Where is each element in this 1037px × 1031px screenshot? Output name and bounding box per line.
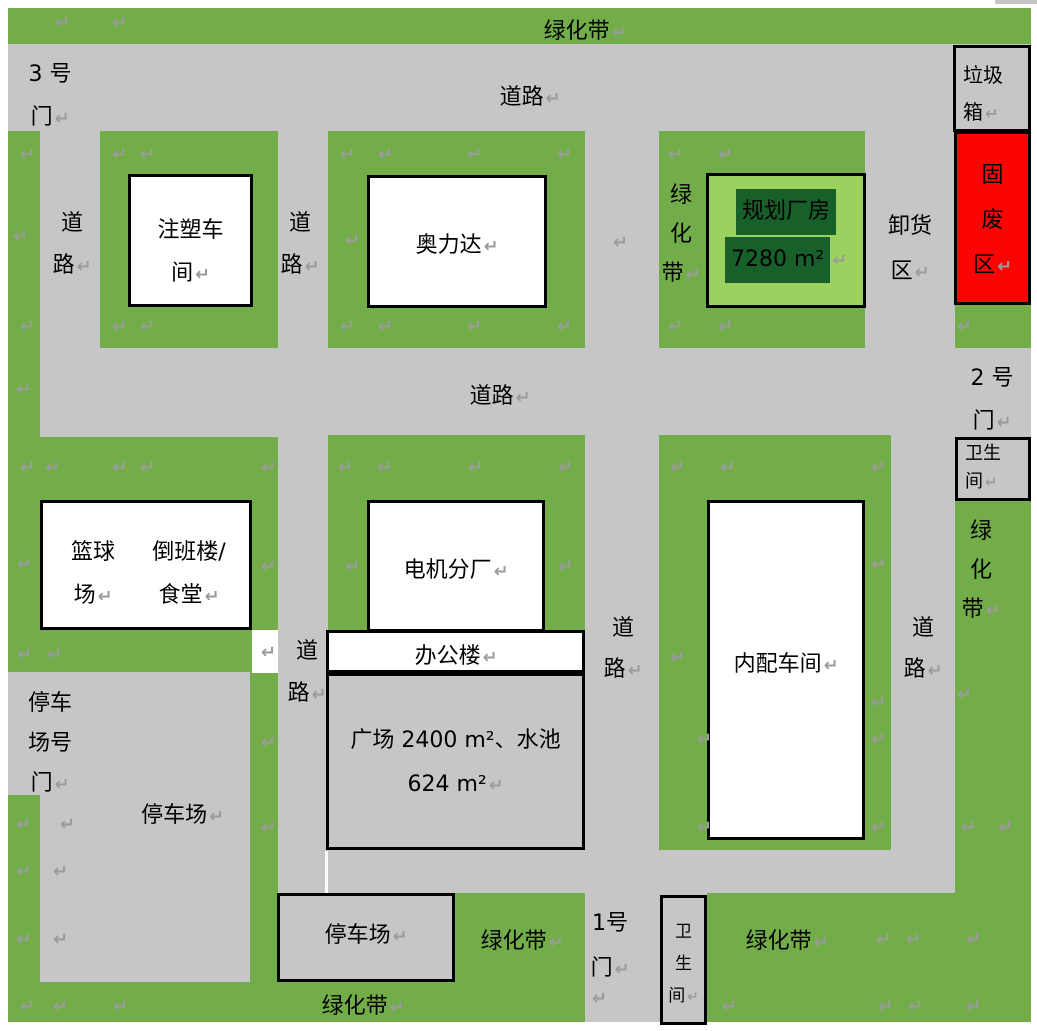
restroom-bottom-label: 卫 生 间↵ [660,916,707,1013]
paragraph-mark-icon: ↵ [467,146,482,164]
parking-main-label: 停车场↵ [120,797,245,829]
paragraph-mark-icon: ↵ [876,931,891,949]
paragraph-mark-icon: ↵ [928,661,943,681]
greenbelt-right-label: 绿 化 带↵ [953,512,1009,631]
internal-workshop-label-text: 内配车间 [734,652,822,677]
paragraph-mark-icon: ↵ [997,257,1012,277]
road-middle-label-text: 道路 [470,384,514,409]
paragraph-mark-icon: ↵ [112,318,127,336]
greenbelt-bottom-strip [8,982,585,1022]
paragraph-mark-icon: ↵ [312,685,327,705]
paragraph-mark-icon: ↵ [261,459,276,477]
paragraph-mark-icon: ↵ [16,381,31,399]
paragraph-mark-icon: ↵ [16,931,31,949]
paragraph-mark-icon: ↵ [824,656,839,676]
office-building-label-text: 办公楼 [415,644,481,669]
paragraph-mark-icon: ↵ [112,146,127,164]
road-top-label-text: 道路 [500,85,544,110]
paragraph-mark-icon: ↵ [546,89,561,109]
internal-workshop-label: 内配车间↵ [716,646,856,678]
paragraph-mark-icon: ↵ [697,731,712,749]
paragraph-mark-icon: ↵ [20,318,35,336]
motor-plant-label-text: 电机分厂 [404,558,492,583]
paragraph-mark-icon: ↵ [871,556,886,574]
paragraph-mark-icon: ↵ [985,104,998,123]
white-gap-line [325,851,328,893]
parking-main-label-text: 停车场 [141,803,207,828]
greenbelt-block-c-label: 绿 化 带↵ [660,176,702,295]
paragraph-mark-icon: ↵ [390,998,405,1018]
paragraph-mark-icon: ↵ [686,265,701,285]
paragraph-mark-icon: ↵ [722,998,737,1016]
paragraph-mark-icon: ↵ [832,251,847,271]
paragraph-mark-icon: ↵ [16,863,31,881]
paragraph-mark-icon: ↵ [467,318,482,336]
paragraph-mark-icon: ↵ [140,146,155,164]
paragraph-mark-icon: ↵ [55,14,70,32]
paragraph-mark-icon: ↵ [814,933,829,953]
paragraph-mark-icon: ↵ [16,816,31,834]
paragraph-mark-icon: ↵ [966,931,981,949]
greenbelt-mid-bottom-label-text: 绿化带 [481,929,547,954]
office-building-label: 办公楼↵ [391,638,521,670]
paragraph-mark-icon: ↵ [261,734,276,752]
paragraph-mark-icon: ↵ [718,318,733,336]
paragraph-mark-icon: ↵ [985,475,997,491]
paragraph-mark-icon: ↵ [60,816,75,834]
paragraph-mark-icon: ↵ [261,644,276,662]
paragraph-mark-icon: ↵ [986,601,1001,621]
paragraph-mark-icon: ↵ [915,263,930,283]
plaza-label: 广场 2400 m²、水池 624 m²↵ [331,719,580,808]
gate-1-label: 1号 门↵ [576,901,644,993]
road-left-lower-label: 道 路↵ [281,631,333,716]
paragraph-mark-icon: ↵ [47,646,62,664]
paragraph-mark-icon: ↵ [957,686,972,704]
paragraph-mark-icon: ↵ [468,459,483,477]
paragraph-mark-icon: ↵ [871,731,886,749]
greenbelt-bottom-right-label-text: 绿化带 [746,929,812,954]
paragraph-mark-icon: ↵ [998,819,1013,837]
paragraph-mark-icon: ↵ [20,459,35,477]
shift-building-label: 倒班楼/ 食堂↵ [134,531,244,619]
paragraph-mark-icon: ↵ [557,318,572,336]
paragraph-mark-icon: ↵ [112,14,127,32]
paragraph-mark-icon: ↵ [112,459,127,477]
paragraph-mark-icon: ↵ [878,998,893,1016]
paragraph-mark-icon: ↵ [53,998,68,1016]
paragraph-mark-icon: ↵ [378,318,393,336]
paragraph-mark-icon: ↵ [77,257,92,277]
window-artifact [995,0,1037,4]
paragraph-mark-icon: ↵ [305,257,320,277]
greenbelt-mid-bottom-label: 绿化带↵ [462,923,582,955]
aolida-label: 奥力达↵ [387,227,527,259]
paragraph-mark-icon: ↵ [377,459,392,477]
paragraph-mark-icon: ↵ [720,459,735,477]
paragraph-mark-icon: ↵ [558,459,573,477]
greenbelt-bottom-label: 绿化带↵ [302,988,424,1020]
gate-3-label: 3 号 门↵ [14,53,86,141]
paragraph-mark-icon: ↵ [997,413,1012,433]
paragraph-mark-icon: ↵ [558,558,573,576]
greenbelt-bottom-label-text: 绿化带 [322,994,388,1019]
green-bottom-right [707,893,1031,1022]
paragraph-mark-icon: ↵ [53,863,68,881]
paragraph-mark-icon: ↵ [17,556,32,574]
paragraph-mark-icon: ↵ [697,819,712,837]
paragraph-mark-icon: ↵ [628,661,643,681]
paragraph-mark-icon: ↵ [670,459,685,477]
planned-building-label-line-1: 7280 m² [725,237,830,283]
parking-gate-label: 停车 场号 门↵ [14,684,86,805]
road-row1-mid-label: 道 路↵ [272,203,328,288]
paragraph-mark-icon: ↵ [338,459,353,477]
paragraph-mark-icon: ↵ [205,587,220,607]
paragraph-mark-icon: ↵ [484,237,499,257]
paragraph-mark-icon: ↵ [668,318,683,336]
paragraph-mark-icon: ↵ [557,146,572,164]
parking-box-label-text: 停车场 [325,923,391,948]
paragraph-mark-icon: ↵ [687,989,698,1005]
paragraph-mark-icon: ↵ [340,146,355,164]
paragraph-mark-icon: ↵ [549,933,564,953]
greenbelt-bottom-right-label: 绿化带↵ [726,923,848,955]
paragraph-mark-icon: ↵ [140,459,155,477]
paragraph-mark-icon: ↵ [261,819,276,837]
injection-workshop-label: 注塑车 间↵ [131,209,250,297]
paragraph-mark-icon: ↵ [670,649,685,667]
paragraph-mark-icon: ↵ [615,960,630,980]
aolida-label-text: 奥力达 [416,233,482,258]
greenbelt-top-label-text: 绿化带 [544,19,610,44]
paragraph-mark-icon: ↵ [195,265,210,285]
paragraph-mark-icon: ↵ [966,998,981,1016]
paragraph-mark-icon: ↵ [718,146,733,164]
paragraph-mark-icon: ↵ [20,146,35,164]
paragraph-mark-icon: ↵ [961,819,976,837]
paragraph-mark-icon: ↵ [13,228,28,246]
road-right-label: 道 路↵ [895,608,951,692]
paragraph-mark-icon: ↵ [55,109,70,129]
parking-box-label: 停车场↵ [300,917,432,949]
paragraph-mark-icon: ↵ [613,234,628,252]
paragraph-mark-icon: ↵ [55,775,70,795]
paragraph-mark-icon: ↵ [45,459,60,477]
paragraph-mark-icon: ↵ [516,388,531,408]
paragraph-mark-icon: ↵ [483,648,498,668]
planned-building-label-line-0: 规划厂房 [736,189,836,235]
paragraph-mark-icon: ↵ [871,694,886,712]
paragraph-mark-icon: ↵ [957,318,972,336]
trash-bin-label: 垃圾 箱↵ [963,57,1027,132]
road-middle-label: 道路↵ [420,378,580,410]
paragraph-mark-icon: ↵ [393,927,408,947]
paragraph-mark-icon: ↵ [871,459,886,477]
paragraph-mark-icon: ↵ [489,776,504,796]
paragraph-mark-icon: ↵ [20,998,35,1016]
basketball-court-label: 篮球 场↵ [46,531,140,619]
paragraph-mark-icon: ↵ [17,646,32,664]
paragraph-mark-icon: ↵ [378,146,393,164]
gate-2-label: 2 号 门↵ [955,357,1029,445]
road-mid-column-label: 道 路↵ [595,608,651,692]
paragraph-mark-icon: ↵ [113,998,128,1016]
paragraph-mark-icon: ↵ [209,807,224,827]
paragraph-mark-icon: ↵ [592,990,607,1008]
paragraph-mark-icon: ↵ [53,931,68,949]
paragraph-mark-icon: ↵ [494,562,509,582]
road-row1-left-label: 道 路↵ [44,203,100,288]
injection-workshop-label-text: 注塑车 间 [157,218,223,286]
solid-waste-label: 固 废 区↵ [954,153,1031,290]
paragraph-mark-icon: ↵ [345,558,360,576]
paragraph-mark-icon: ↵ [612,23,627,43]
paragraph-mark-icon: ↵ [140,318,155,336]
road-top-label: 道路↵ [450,79,610,111]
paragraph-mark-icon: ↵ [668,146,683,164]
site-plan-canvas: 绿化带↵3 号 门↵道路↵道 路↵道 路↵绿 化 带↵卸货 区↵垃圾 箱↵固 废… [0,0,1037,1031]
paragraph-mark-icon: ↵ [345,232,360,250]
plaza-label-text: 广场 2400 m²、水池 624 m² [350,728,560,797]
paragraph-mark-icon: ↵ [261,558,276,576]
paragraph-mark-icon: ↵ [871,819,886,837]
planned-building-label: 规划厂房7280 m²↵ [711,188,861,284]
paragraph-mark-icon: ↵ [908,998,923,1016]
restroom-right-label: 卫生 间↵ [965,440,1027,497]
paragraph-mark-icon: ↵ [98,587,113,607]
motor-plant-label: 电机分厂↵ [377,552,535,584]
paragraph-mark-icon: ↵ [906,931,921,949]
paragraph-mark-icon: ↵ [340,318,355,336]
unloading-area-label: 卸货 区↵ [877,204,943,296]
greenbelt-top-label: 绿化带↵ [505,13,665,45]
